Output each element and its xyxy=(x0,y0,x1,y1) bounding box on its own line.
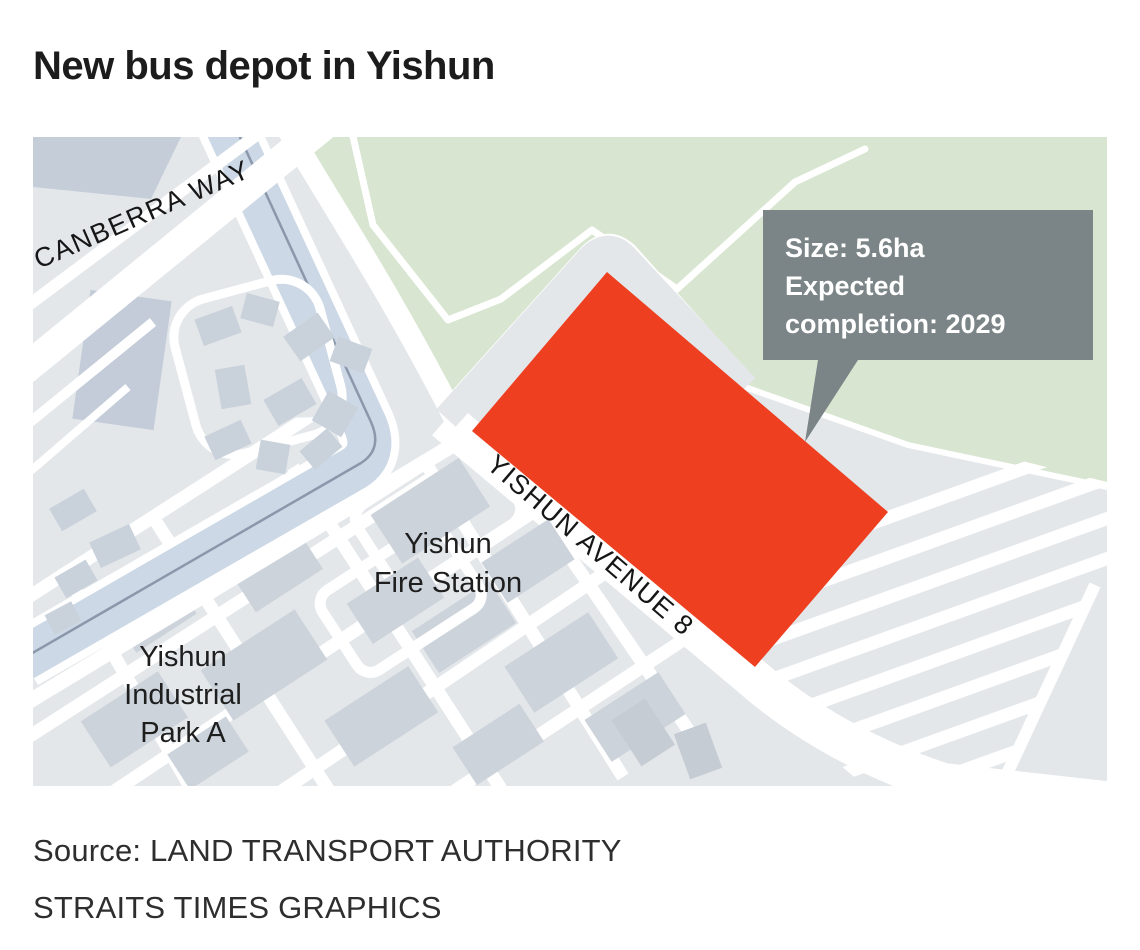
fire-station-label-line2: Fire Station xyxy=(374,567,522,599)
source-line: Source: LAND TRANSPORT AUTHORITY xyxy=(33,822,622,879)
fire-station-label-line1: Yishun xyxy=(404,528,492,560)
callout-line2: Expected xyxy=(785,271,905,301)
callout-line3: completion: 2029 xyxy=(785,309,1006,339)
map-container: CANBERRA WAY YISHUN AVENUE 8 Yishun Fire… xyxy=(33,137,1107,786)
source-block: Source: LAND TRANSPORT AUTHORITY STRAITS… xyxy=(33,822,622,936)
yishun-map: CANBERRA WAY YISHUN AVENUE 8 Yishun Fire… xyxy=(33,137,1107,786)
credit-line: STRAITS TIMES GRAPHICS xyxy=(33,879,622,936)
page-title: New bus depot in Yishun xyxy=(33,44,495,89)
callout-line1: Size: 5.6ha xyxy=(785,233,926,263)
industrial-label-line2: Industrial xyxy=(124,679,242,711)
industrial-label-line1: Yishun xyxy=(139,641,227,673)
industrial-label-line3: Park A xyxy=(140,717,226,749)
label-industrial-park: Yishun Industrial Park A xyxy=(124,641,242,749)
